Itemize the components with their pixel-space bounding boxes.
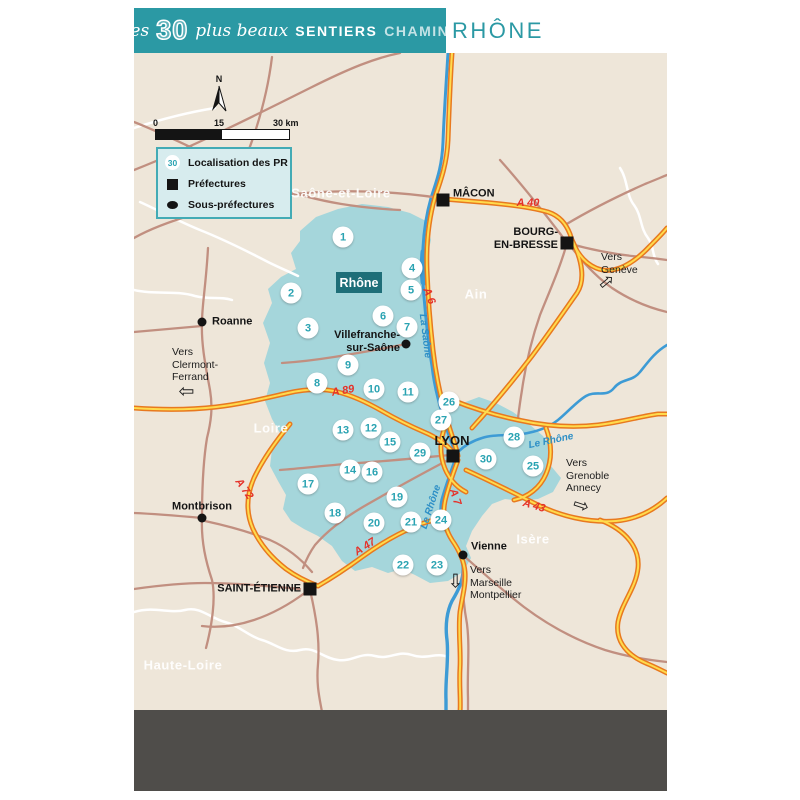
map <box>134 53 667 710</box>
header-word-sentiers: SENTIERS <box>295 23 377 39</box>
header-band: Les 30 plus beaux SENTIERS CHAMINA <box>134 8 446 53</box>
header-number-30: 30 <box>156 17 188 44</box>
header-script-plus-beaux: plus beaux <box>195 21 288 41</box>
region-title: RHÔNE <box>452 8 544 53</box>
book-back-cover: Les 30 plus beaux SENTIERS CHAMINA RHÔNE <box>0 0 800 800</box>
footer: Chamina EDITION WWW.CHAMINA.COM Prix pub… <box>134 710 667 791</box>
map-geometry <box>134 53 667 710</box>
header-script-les: Les <box>119 21 149 41</box>
header-word-chamina: CHAMINA <box>384 23 461 39</box>
